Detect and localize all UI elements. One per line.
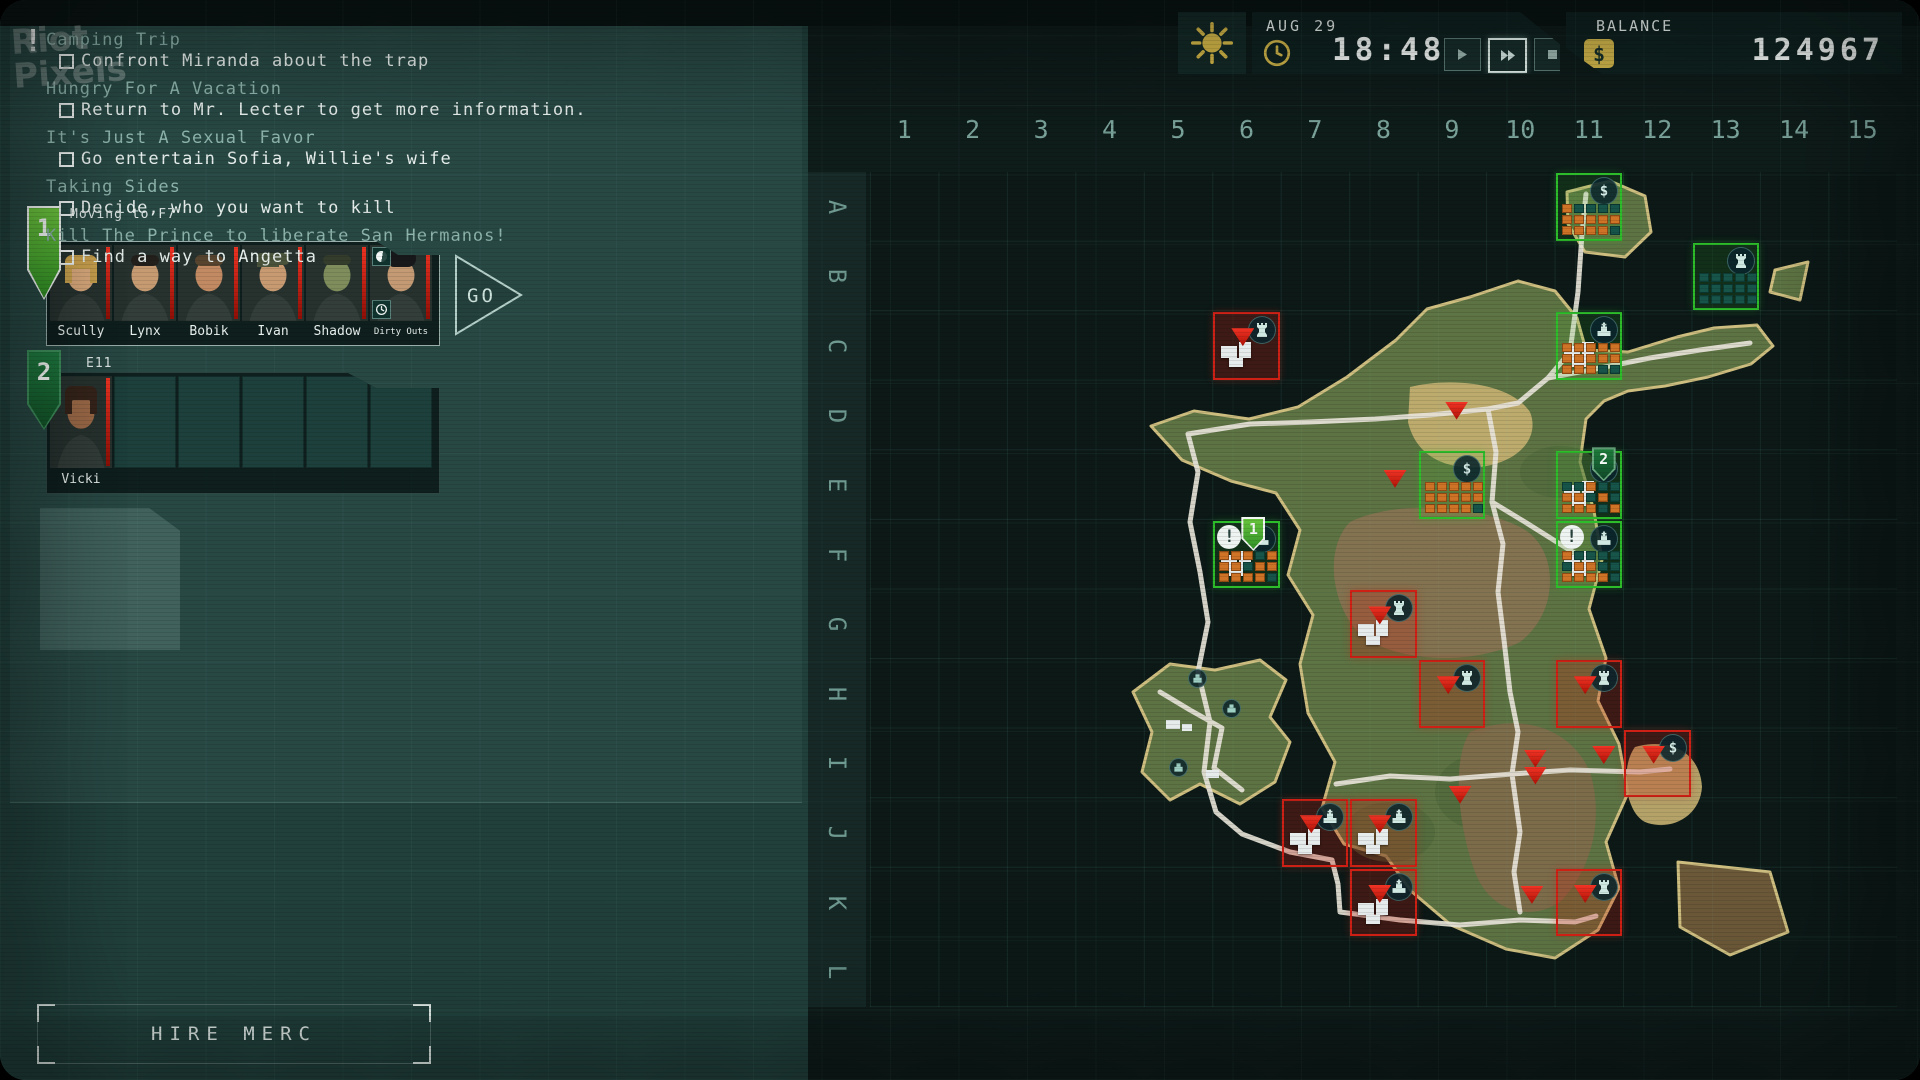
building-block (1358, 624, 1374, 636)
sector-H9[interactable] (1419, 660, 1486, 728)
militia-cell-filled (1449, 504, 1459, 513)
watermark: RiotPixels (10, 18, 128, 94)
sector-A11[interactable]: $ (1556, 173, 1623, 241)
militia-cell-filled (1574, 573, 1584, 582)
militia-cell-empty (1699, 273, 1709, 282)
militia-cell-filled (1461, 482, 1471, 491)
quest-checkbox[interactable] (59, 250, 74, 265)
militia-cell-empty (1473, 504, 1483, 513)
svg-text:$: $ (1600, 184, 1608, 200)
militia-cell-empty (1562, 482, 1572, 491)
clock-icon (1262, 38, 1292, 68)
church-sector-icon (1590, 316, 1618, 344)
militia-cell-filled (1243, 573, 1253, 582)
sector-H11[interactable] (1556, 660, 1623, 728)
row-label-text: B (823, 269, 851, 283)
squad-number: 2 (37, 358, 51, 428)
militia-cell-empty (1711, 284, 1721, 293)
squad-name-row: ScullyLynxBobikIvanShadowDirty Outs (50, 322, 432, 342)
militia-cell-empty (1699, 295, 1709, 304)
column-label: 10 (1486, 102, 1554, 158)
map-row-labels: ABCDEFGHIJKL (808, 172, 866, 1007)
sector-J8[interactable] (1350, 799, 1417, 867)
militia-cell-filled (1586, 343, 1596, 352)
building-block (1290, 833, 1306, 845)
militia-cell-filled (1586, 215, 1596, 224)
quest-checkbox[interactable] (59, 152, 74, 167)
date-label: AUG 29 (1266, 17, 1338, 35)
militia-cell-filled (1598, 493, 1608, 502)
merc-name: Bobik (178, 322, 240, 342)
column-label: 1 (870, 102, 938, 158)
militia-cell-filled (1562, 493, 1572, 502)
militia-cell-filled (1267, 551, 1277, 560)
militia-cell-empty (1574, 204, 1584, 213)
quest-entry: It's Just A Sexual FavorGo entertain Sof… (46, 128, 766, 170)
militia-cell-filled (1461, 493, 1471, 502)
militia-grid (1425, 482, 1483, 513)
quest-task-label: Go entertain Sofia, Willie's wife (81, 149, 452, 170)
militia-cell-filled (1231, 551, 1241, 560)
row-label: F (808, 520, 866, 590)
sector-E11[interactable]: 2 (1556, 451, 1623, 519)
militia-cell-filled (1437, 504, 1447, 513)
militia-cell-filled (1610, 215, 1620, 224)
quest-task[interactable]: Confront Miranda about the trap (46, 51, 766, 72)
sector-K8[interactable] (1350, 869, 1417, 937)
militia-cell-filled (1562, 551, 1572, 560)
militia-cell-empty (1267, 573, 1277, 582)
merc-name (178, 469, 240, 491)
militia-cell-filled (1586, 482, 1596, 491)
militia-cell-empty (1598, 204, 1608, 213)
empty-merc-slot[interactable] (306, 376, 368, 468)
militia-cell-filled (1437, 493, 1447, 502)
quest-task-label: Return to Mr. Lecter to get more informa… (81, 100, 587, 121)
quest-entry: Camping TripConfront Miranda about the t… (46, 30, 766, 72)
empty-merc-slot[interactable] (370, 376, 432, 468)
militia-cell-empty (1747, 284, 1757, 293)
quest-title[interactable]: It's Just A Sexual Favor (46, 128, 766, 149)
column-label: 3 (1007, 102, 1075, 158)
militia-cell-empty (1610, 226, 1620, 235)
militia-cell-filled (1586, 573, 1596, 582)
militia-cell-empty (1598, 482, 1608, 491)
row-label-text: F (823, 547, 851, 561)
militia-cell-filled (1562, 354, 1572, 363)
merc-name: Scully (50, 322, 112, 342)
building-block (1376, 899, 1388, 915)
merc-health-bar (106, 378, 110, 466)
militia-cell-filled (1449, 493, 1459, 502)
militia-cell-empty (1610, 562, 1620, 571)
militia-cell-filled (1243, 551, 1253, 560)
column-label: 4 (1075, 102, 1143, 158)
quest-title[interactable]: Hungry For A Vacation (46, 79, 766, 100)
balance-label: BALANCE (1596, 17, 1673, 35)
militia-cell-empty (1711, 273, 1721, 282)
sector-F11[interactable]: ! (1556, 521, 1623, 589)
militia-cell-filled (1219, 551, 1229, 560)
militia-cell-filled (1586, 365, 1596, 374)
militia-cell-empty (1747, 295, 1757, 304)
alert-icon: ! (1560, 525, 1584, 549)
merc-name: Vicki (50, 469, 112, 491)
quest-task-label: Confront Miranda about the trap (81, 51, 429, 72)
sector-C6[interactable] (1213, 312, 1280, 380)
militia-cell-filled (1255, 573, 1265, 582)
militia-cell-filled (1425, 482, 1435, 491)
play-button[interactable] (1444, 38, 1481, 71)
squad-slot-row (50, 376, 432, 468)
dollar-sector-icon: $ (1590, 177, 1618, 205)
strategy-map-screen: 123456789101112131415 ABCDEFGHIJKL (0, 0, 1920, 1080)
merc-name: Dirty Outs (370, 322, 432, 342)
svg-text:$: $ (1463, 462, 1471, 478)
militia-cell-filled (1461, 504, 1471, 513)
building-block (1366, 915, 1380, 924)
militia-grid (1699, 273, 1757, 304)
tower-sector-icon (1727, 247, 1755, 275)
merc-name: Ivan (242, 322, 304, 342)
map-canvas[interactable]: $$2!1!$ (870, 172, 1897, 1007)
militia-cell-filled (1574, 493, 1584, 502)
map-column-labels: 123456789101112131415 (870, 102, 1897, 158)
militia-cell-filled (1255, 562, 1265, 571)
alert-icon: ! (1217, 525, 1241, 549)
empty-squad-slot-panel (40, 508, 180, 650)
pin-fill: 1 (1243, 519, 1263, 549)
play-icon (1454, 46, 1471, 63)
militia-cell-filled (1586, 354, 1596, 363)
militia-cell-filled (1425, 493, 1435, 502)
quest-title[interactable]: Camping Trip (46, 30, 766, 51)
islet-northeast (1770, 262, 1808, 300)
datetime-panel: AUG 29 18:48 (1252, 12, 1560, 74)
column-label: 7 (1281, 102, 1349, 158)
militia-cell-filled (1562, 504, 1572, 513)
balance-value: 124967 (1752, 33, 1884, 68)
militia-cell-empty (1610, 482, 1620, 491)
quest-list: Camping TripConfront Miranda about the t… (46, 30, 766, 275)
column-label: 11 (1555, 102, 1623, 158)
militia-cell-filled (1562, 204, 1572, 213)
row-label: B (808, 242, 866, 312)
hire-merc-button[interactable]: HIRE MERC (37, 1004, 431, 1064)
militia-cell-filled (1574, 226, 1584, 235)
empty-merc-slot[interactable] (178, 376, 240, 468)
militia-grid (1562, 551, 1620, 582)
row-label: H (808, 659, 866, 729)
row-label-text: J (823, 826, 851, 840)
quest-title[interactable]: Taking Sides (46, 177, 766, 198)
button-corner (37, 1004, 55, 1022)
column-label: 13 (1691, 102, 1759, 158)
militia-cell-filled (1562, 365, 1572, 374)
column-label: 12 (1623, 102, 1691, 158)
militia-cell-filled (1231, 573, 1241, 582)
row-label: C (808, 311, 866, 381)
go-label: GO (467, 285, 496, 307)
militia-cell-empty (1610, 204, 1620, 213)
column-label: 6 (1212, 102, 1280, 158)
building-block (1376, 829, 1388, 845)
time-controls (1444, 38, 1571, 73)
militia-cell-filled (1437, 482, 1447, 491)
militia-grid (1562, 482, 1620, 513)
fast-forward-button[interactable] (1488, 38, 1527, 73)
sector-G8[interactable] (1350, 590, 1417, 658)
militia-cell-filled (1574, 354, 1584, 363)
row-label-text: K (823, 895, 851, 909)
column-label: 5 (1144, 102, 1212, 158)
militia-cell-empty (1598, 365, 1608, 374)
militia-cell-filled (1598, 226, 1608, 235)
squad-name-row: Vicki (50, 469, 432, 491)
militia-cell-empty (1598, 504, 1608, 513)
militia-cell-empty (1598, 562, 1608, 571)
militia-cell-empty (1735, 284, 1745, 293)
building-block (1298, 845, 1312, 854)
quest-task[interactable]: Return to Mr. Lecter to get more informa… (46, 100, 766, 121)
button-corner (413, 1004, 431, 1022)
row-label-text: L (823, 965, 851, 979)
quest-title[interactable]: Kill The Prince to liberate San Hermanos… (46, 226, 766, 247)
stop-icon (1544, 46, 1561, 63)
row-label: L (808, 937, 866, 1007)
militia-cell-filled (1586, 562, 1596, 571)
militia-cell-filled (1574, 215, 1584, 224)
merc-name: Shadow (306, 322, 368, 342)
building-block (1239, 342, 1251, 358)
row-label-text: A (823, 200, 851, 214)
squad-marker-fill: 2 (29, 352, 59, 428)
militia-cell-filled (1473, 493, 1483, 502)
sector-F6[interactable]: !1 (1213, 521, 1280, 589)
column-label: 15 (1828, 102, 1896, 158)
squad-2-panel[interactable]: Vicki (46, 372, 440, 494)
row-label: J (808, 798, 866, 868)
southeast-island (1678, 862, 1788, 955)
sector-J7[interactable] (1282, 799, 1349, 867)
balance-panel: BALANCE $ 124967 (1566, 12, 1902, 74)
militia-cell-empty (1723, 273, 1733, 282)
sun-icon (1190, 21, 1234, 65)
militia-cell-empty (1574, 551, 1584, 560)
row-label: D (808, 381, 866, 451)
building-block (1221, 346, 1237, 358)
militia-grid (1562, 343, 1620, 374)
militia-cell-filled (1231, 562, 1241, 571)
row-label: A (808, 172, 866, 242)
empty-merc-slot[interactable] (114, 376, 176, 468)
militia-cell-empty (1586, 204, 1596, 213)
militia-cell-filled (1598, 354, 1608, 363)
militia-cell-filled (1562, 226, 1572, 235)
squad-1-map-pin[interactable]: 1 (1241, 517, 1265, 551)
militia-cell-filled (1425, 504, 1435, 513)
building-map-icon (1188, 669, 1207, 688)
row-label-text: D (823, 408, 851, 422)
militia-cell-filled (1267, 562, 1277, 571)
quest-task[interactable]: Go entertain Sofia, Willie's wife (46, 149, 766, 170)
militia-cell-filled (1586, 504, 1596, 513)
merc-name (306, 469, 368, 491)
merc-name: Lynx (114, 322, 176, 342)
row-label-text: G (823, 617, 851, 631)
sector-E9[interactable]: $ (1419, 451, 1486, 519)
column-label: 2 (938, 102, 1006, 158)
dollar-icon: $ (1584, 39, 1614, 68)
squad-2-status: E11 (86, 356, 112, 371)
militia-grid (1219, 551, 1277, 582)
militia-grid (1562, 204, 1620, 235)
militia-cell-empty (1255, 551, 1265, 560)
militia-cell-filled (1219, 562, 1229, 571)
militia-cell-filled (1574, 504, 1584, 513)
building-block (1358, 903, 1374, 915)
militia-cell-filled (1610, 354, 1620, 363)
button-corner (413, 1046, 431, 1064)
militia-cell-empty (1598, 551, 1608, 560)
button-corner (37, 1046, 55, 1064)
row-label-text: I (823, 756, 851, 770)
building-block (1366, 636, 1380, 645)
church-sector-icon (1590, 525, 1618, 553)
militia-cell-empty (1723, 295, 1733, 304)
militia-cell-filled (1219, 573, 1229, 582)
militia-cell-filled (1598, 343, 1608, 352)
militia-cell-empty (1586, 493, 1596, 502)
west-island (1133, 660, 1290, 804)
sector-K11[interactable] (1556, 869, 1623, 937)
merc-name (114, 469, 176, 491)
militia-cell-empty (1574, 482, 1584, 491)
militia-cell-filled (1610, 343, 1620, 352)
building-block (1376, 620, 1388, 636)
daytime-indicator (1178, 12, 1246, 74)
militia-cell-empty (1610, 551, 1620, 560)
svg-text:$: $ (1668, 740, 1676, 756)
militia-cell-filled (1598, 573, 1608, 582)
militia-cell-empty (1735, 273, 1745, 282)
militia-cell-empty (1243, 562, 1253, 571)
squad-1-status: Moving to F7 (70, 207, 176, 222)
militia-cell-empty (1610, 573, 1620, 582)
militia-cell-empty (1711, 295, 1721, 304)
militia-cell-empty (1747, 273, 1757, 282)
quest-entry: Kill The Prince to liberate San Hermanos… (46, 226, 766, 268)
row-label-text: H (823, 687, 851, 701)
squad-2-marker[interactable]: 2 (27, 350, 61, 430)
merc-name (370, 469, 432, 491)
militia-cell-empty (1610, 493, 1620, 502)
sector-B13[interactable] (1693, 243, 1760, 311)
column-label: 9 (1418, 102, 1486, 158)
sector-I12[interactable]: $ (1624, 730, 1691, 798)
militia-cell-filled (1473, 482, 1483, 491)
row-label: K (808, 868, 866, 938)
time-display: 18:48 (1332, 32, 1445, 68)
militia-cell-filled (1574, 343, 1584, 352)
column-label: 14 (1760, 102, 1828, 158)
pin-number: 2 (1594, 449, 1614, 469)
clock-glyph (375, 303, 388, 316)
militia-cell-filled (1562, 573, 1572, 582)
militia-cell-empty (1735, 295, 1745, 304)
row-label: I (808, 729, 866, 799)
merc-name (242, 469, 304, 491)
militia-cell-empty (1610, 365, 1620, 374)
building-map-icon (1169, 758, 1188, 777)
militia-cell-empty (1723, 284, 1733, 293)
militia-cell-filled (1586, 226, 1596, 235)
building-block (1358, 833, 1374, 845)
militia-cell-empty (1586, 551, 1596, 560)
empty-merc-slot[interactable] (242, 376, 304, 468)
clock-status-icon (372, 300, 391, 319)
row-label-text: C (823, 339, 851, 353)
pin-fill: 2 (1594, 449, 1614, 479)
row-label: E (808, 450, 866, 520)
building-block (1308, 829, 1320, 845)
militia-cell-filled (1449, 482, 1459, 491)
row-label: G (808, 589, 866, 659)
militia-cell-filled (1574, 365, 1584, 374)
militia-cell-filled (1562, 215, 1572, 224)
quest-task[interactable]: Find a way to Angetta (46, 247, 766, 268)
militia-cell-filled (1562, 343, 1572, 352)
militia-cell-filled (1598, 215, 1608, 224)
map-region: 123456789101112131415 ABCDEFGHIJKL (808, 26, 1920, 1080)
dollar-sector-icon: $ (1453, 455, 1481, 483)
row-label-text: E (823, 478, 851, 492)
militia-cell-filled (1610, 504, 1620, 513)
fast-forward-icon (1499, 47, 1517, 64)
squad-2-map-pin[interactable]: 2 (1592, 447, 1616, 481)
sector-C11[interactable] (1556, 312, 1623, 380)
hire-merc-label: HIRE MERC (151, 1023, 317, 1045)
quest-task-label: Find a way to Angetta (81, 247, 317, 268)
militia-cell-empty (1562, 562, 1572, 571)
building-map-icon (1222, 699, 1241, 718)
militia-cell-filled (1574, 562, 1584, 571)
pin-number: 1 (1243, 519, 1263, 539)
column-label: 8 (1349, 102, 1417, 158)
building-block (1366, 845, 1380, 854)
militia-cell-empty (1699, 284, 1709, 293)
building-block (1229, 358, 1243, 367)
quest-checkbox[interactable] (59, 103, 74, 118)
quest-entry: Hungry For A VacationReturn to Mr. Lecte… (46, 79, 766, 121)
